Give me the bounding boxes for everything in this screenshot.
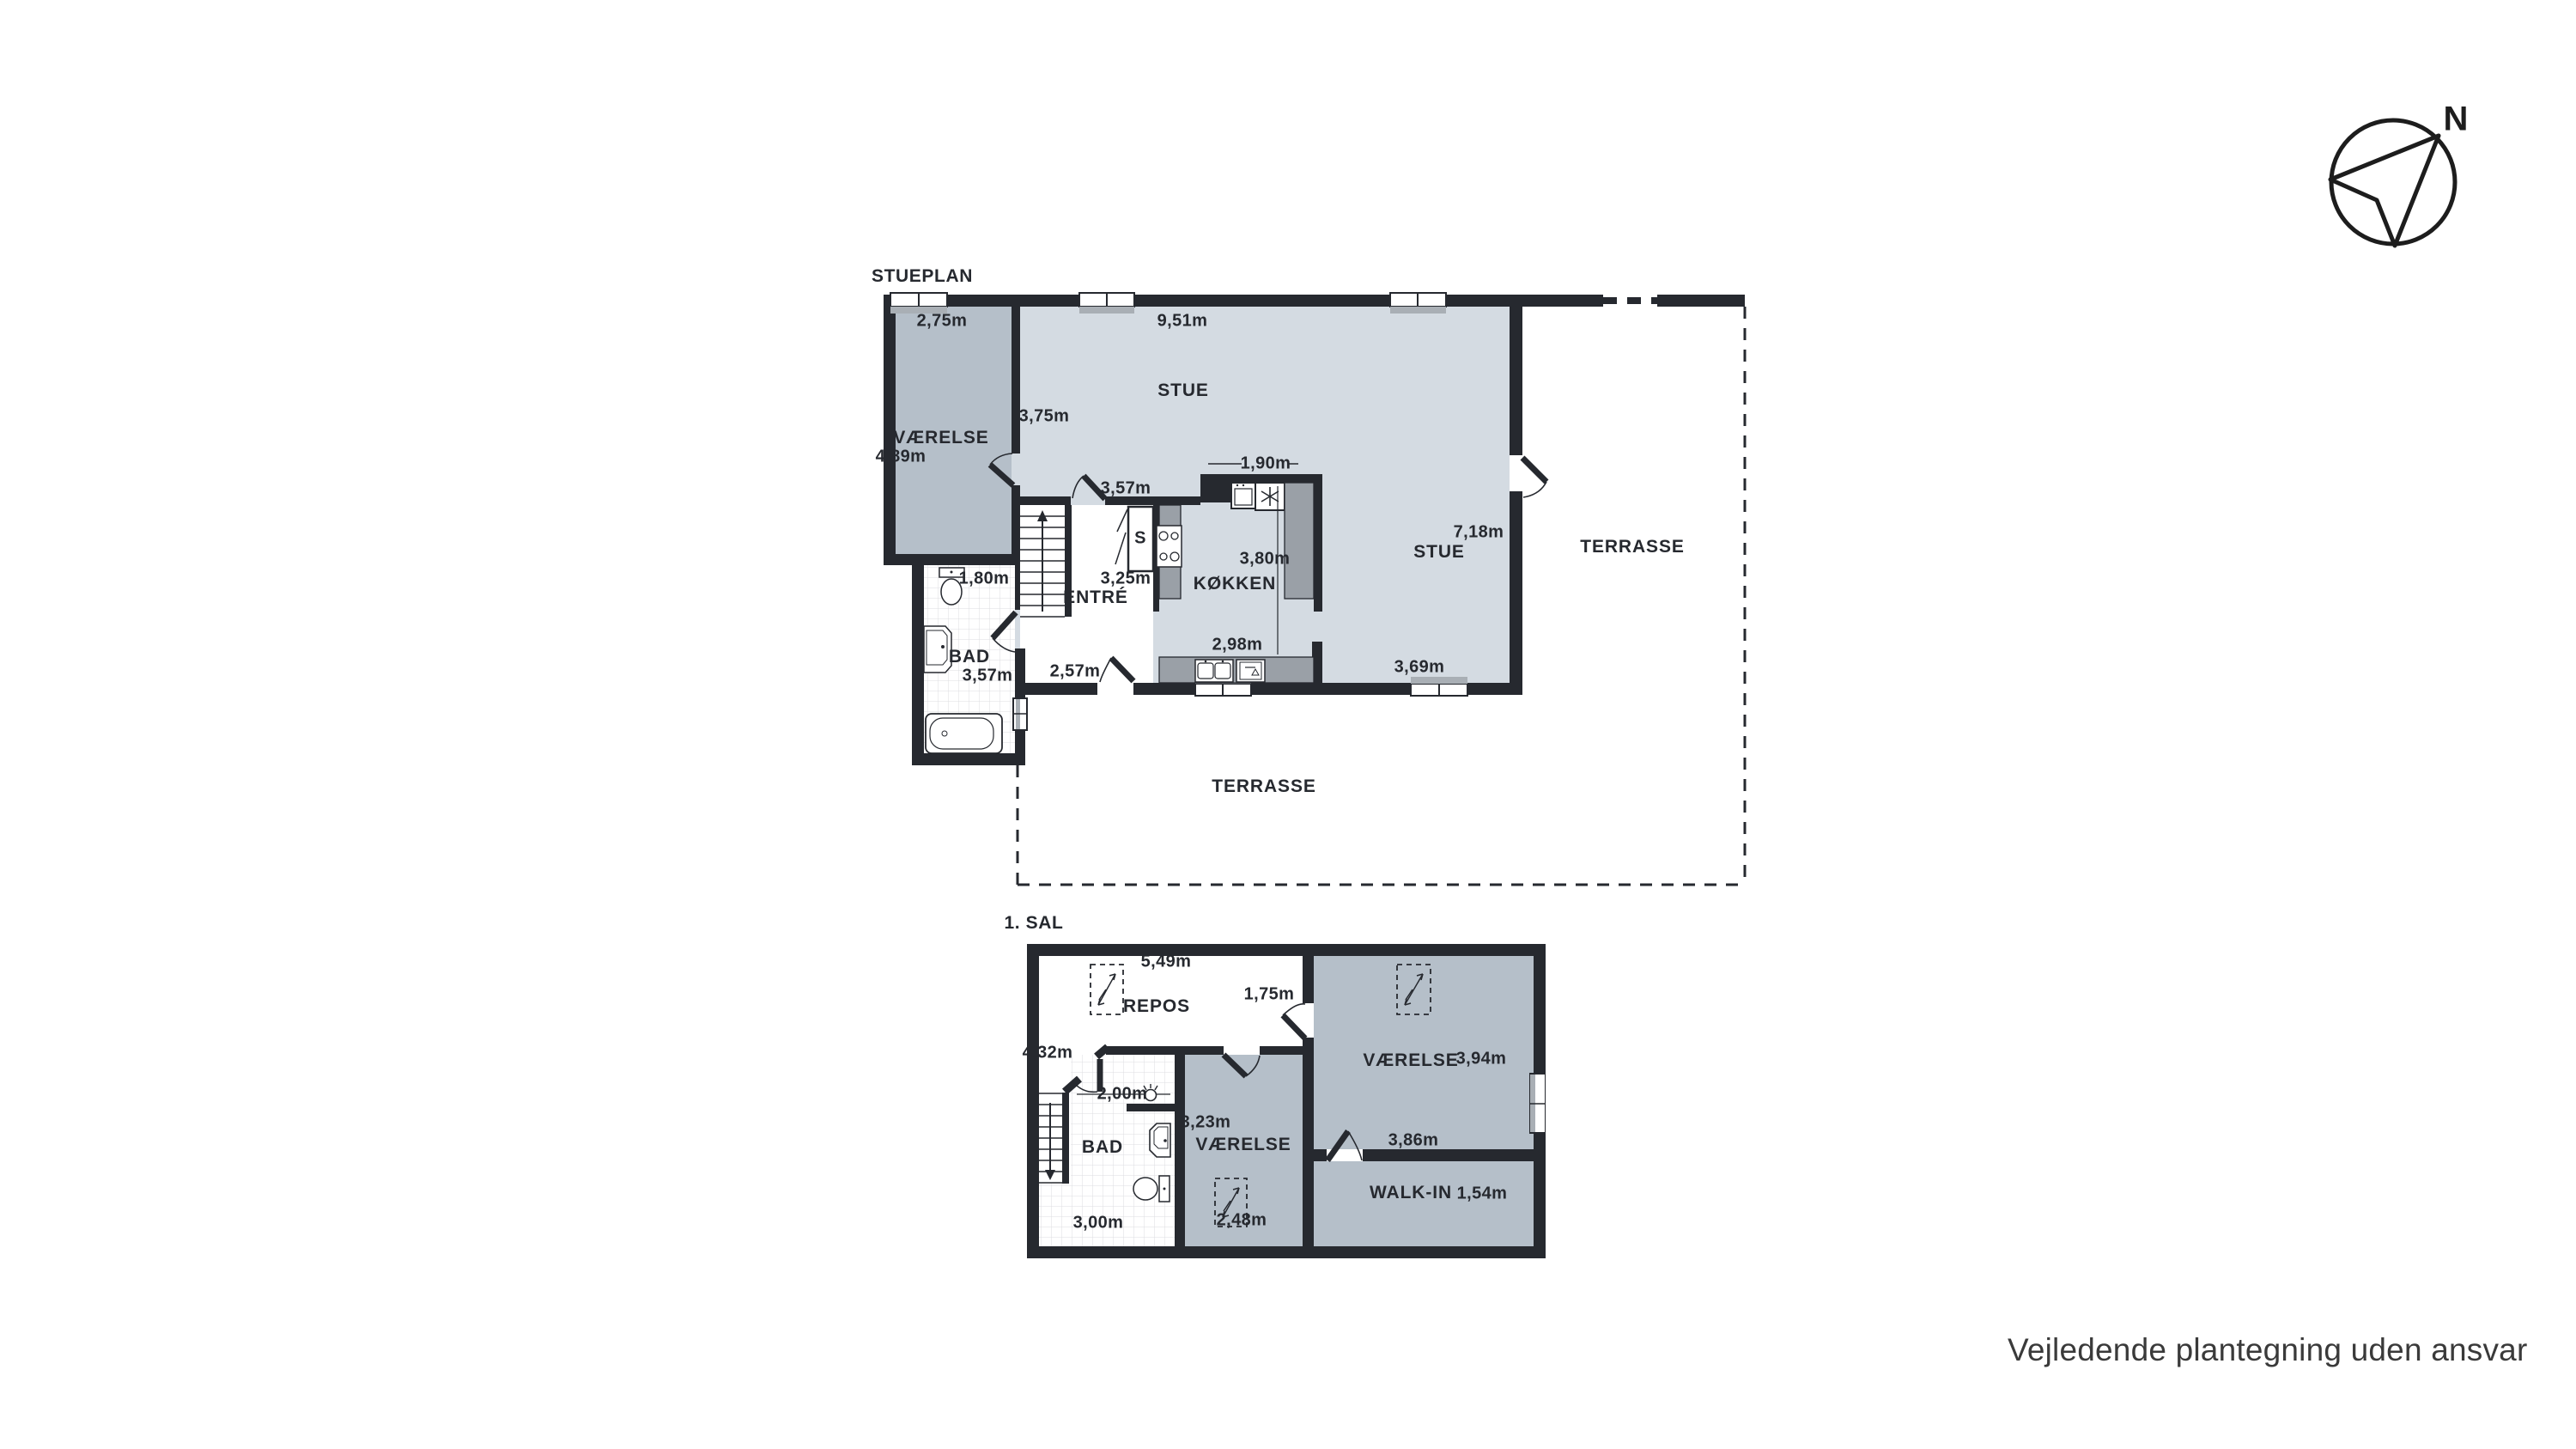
- dim-bad-width-first: 3,00m: [1073, 1214, 1124, 1233]
- room-label-bad-ground: BAD: [949, 647, 990, 667]
- dim-repos-height: 4,32m: [1023, 1044, 1073, 1063]
- first-floor-title: 1. SAL: [1005, 913, 1064, 934]
- dim-island-width: 1,90m: [1241, 454, 1291, 474]
- room-label-repos: REPOS: [1123, 996, 1190, 1017]
- dim-bad-door: 2,00m: [1097, 1085, 1148, 1105]
- disclaimer-text: Vejledende plantegning uden ansvar: [2008, 1332, 2527, 1368]
- room-label-vaerelse-ground: VÆRELSE: [893, 428, 988, 448]
- room-label-vaerelse-right: VÆRELSE: [1363, 1050, 1458, 1071]
- window-top-1: [890, 293, 947, 314]
- window-top-3: [1390, 293, 1446, 314]
- dim-stue-height: 3,75m: [1019, 407, 1070, 427]
- room-label-vaerelse-mid: VÆRELSE: [1195, 1135, 1291, 1155]
- dim-koekken-width: 2,98m: [1212, 636, 1263, 655]
- compass-north-label: N: [2444, 100, 2469, 139]
- dim-stue-door: 3,57m: [1101, 479, 1151, 499]
- room-label-koekken: KØKKEN: [1194, 574, 1276, 594]
- first-window-right: [1530, 1074, 1546, 1133]
- room-label-stue2: STUE: [1413, 542, 1465, 563]
- dishwasher-icon: [1236, 660, 1265, 682]
- room-label-bad-first: BAD: [1082, 1137, 1123, 1158]
- toilet-icon-first: [1133, 1176, 1170, 1202]
- bathtub-icon: [926, 714, 1002, 753]
- room-label-entre: ENTRÉ: [1063, 588, 1128, 608]
- dim-door-wall-width: 3,86m: [1388, 1131, 1439, 1151]
- room-label-walkin: WALK-IN: [1370, 1183, 1452, 1203]
- first-stairs: [1039, 1093, 1062, 1184]
- cooktop-icon: [1157, 526, 1182, 567]
- dim-stue-width: 9,51m: [1157, 312, 1208, 332]
- kitchen-island-counter: [1285, 483, 1314, 599]
- dim-entre-height: 3,25m: [1101, 569, 1151, 589]
- dim-vaerelse-width: 2,75m: [917, 312, 968, 332]
- window-top-2: [1079, 293, 1134, 314]
- closet-label-s: S: [1134, 529, 1146, 549]
- dim-bad-width-ground: 1,80m: [959, 569, 1010, 589]
- ground-floor-drawing: [876, 288, 1786, 898]
- room-label-terrasse-right: TERRASSE: [1580, 537, 1685, 557]
- dim-bad-height-ground: 3,57m: [963, 667, 1013, 686]
- dim-repos-width: 5,49m: [1141, 953, 1192, 972]
- floorplan-page: N STUEPLAN 2,75m 9,51m VÆRELSE 4,89m STU…: [0, 0, 2576, 1449]
- dim-stue2-height: 7,18m: [1454, 523, 1504, 543]
- dim-vaerelse-mid-width: 3,23m: [1181, 1113, 1231, 1133]
- window-bottom-2: [1411, 677, 1467, 696]
- dim-stue2-width: 3,69m: [1394, 658, 1445, 678]
- dim-vaerelse-right-height: 3,94m: [1456, 1050, 1507, 1069]
- dim-walkin-height: 1,54m: [1457, 1184, 1508, 1204]
- window-bad: [1013, 698, 1027, 730]
- washbasin-icon: [924, 626, 951, 673]
- fridge-icon: [1255, 483, 1285, 510]
- dim-entre-width: 2,57m: [1050, 662, 1101, 682]
- room-label-terrasse-bottom: TERRASSE: [1212, 776, 1316, 797]
- dim-skylight-width: 2,48m: [1217, 1211, 1267, 1231]
- ground-stairs: [1020, 505, 1065, 617]
- room-label-stue: STUE: [1157, 381, 1209, 401]
- sink-icon: [1195, 660, 1233, 682]
- dim-vaerelse-height: 4,89m: [876, 447, 927, 467]
- washbasin-icon-first: [1150, 1123, 1170, 1157]
- dim-koekken-height: 3,80m: [1240, 550, 1291, 569]
- oven-icon: [1231, 483, 1255, 508]
- dim-repos-door: 1,75m: [1244, 985, 1295, 1005]
- ground-floor-title: STUEPLAN: [872, 266, 973, 287]
